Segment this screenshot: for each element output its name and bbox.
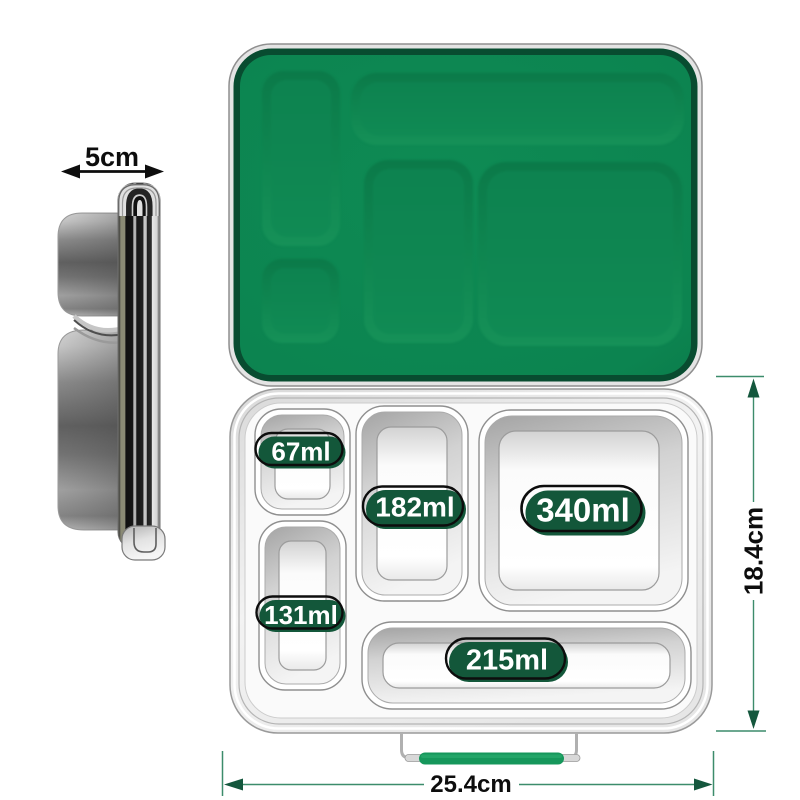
svg-text:215ml: 215ml <box>466 645 548 677</box>
svg-text:67ml: 67ml <box>271 437 330 467</box>
svg-text:131ml: 131ml <box>264 600 338 630</box>
svg-text:5cm: 5cm <box>85 142 139 172</box>
svg-text:25.4cm: 25.4cm <box>430 771 511 798</box>
svg-text:182ml: 182ml <box>375 492 454 523</box>
svg-text:18.4cm: 18.4cm <box>739 507 769 595</box>
svg-text:340ml: 340ml <box>536 492 630 529</box>
